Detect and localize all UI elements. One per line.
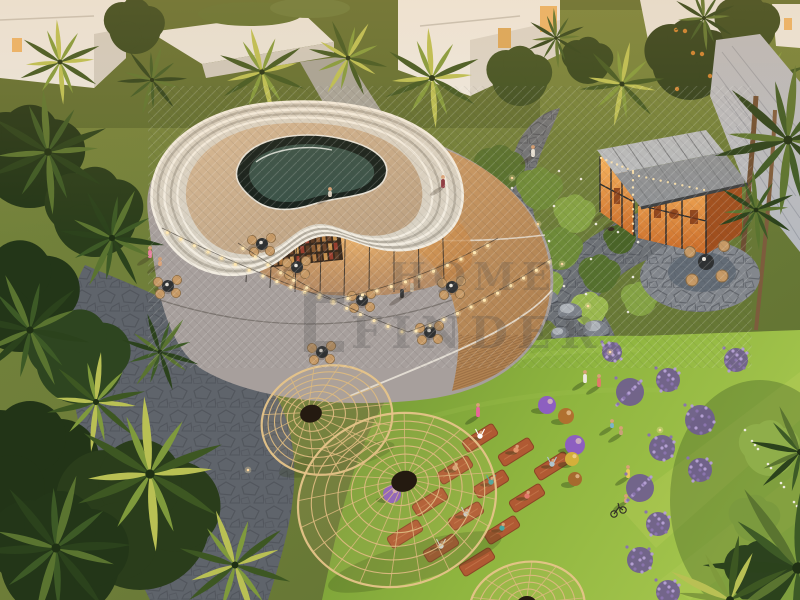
- render-canvas: Aerial twilight architectural rendering …: [0, 0, 800, 600]
- community-render: Aerial twilight architectural rendering …: [0, 0, 800, 600]
- watermark-line1: HOME: [390, 254, 558, 299]
- watermark: HOME FINDER: [148, 86, 752, 368]
- watermark-line2: FINDER: [351, 308, 605, 359]
